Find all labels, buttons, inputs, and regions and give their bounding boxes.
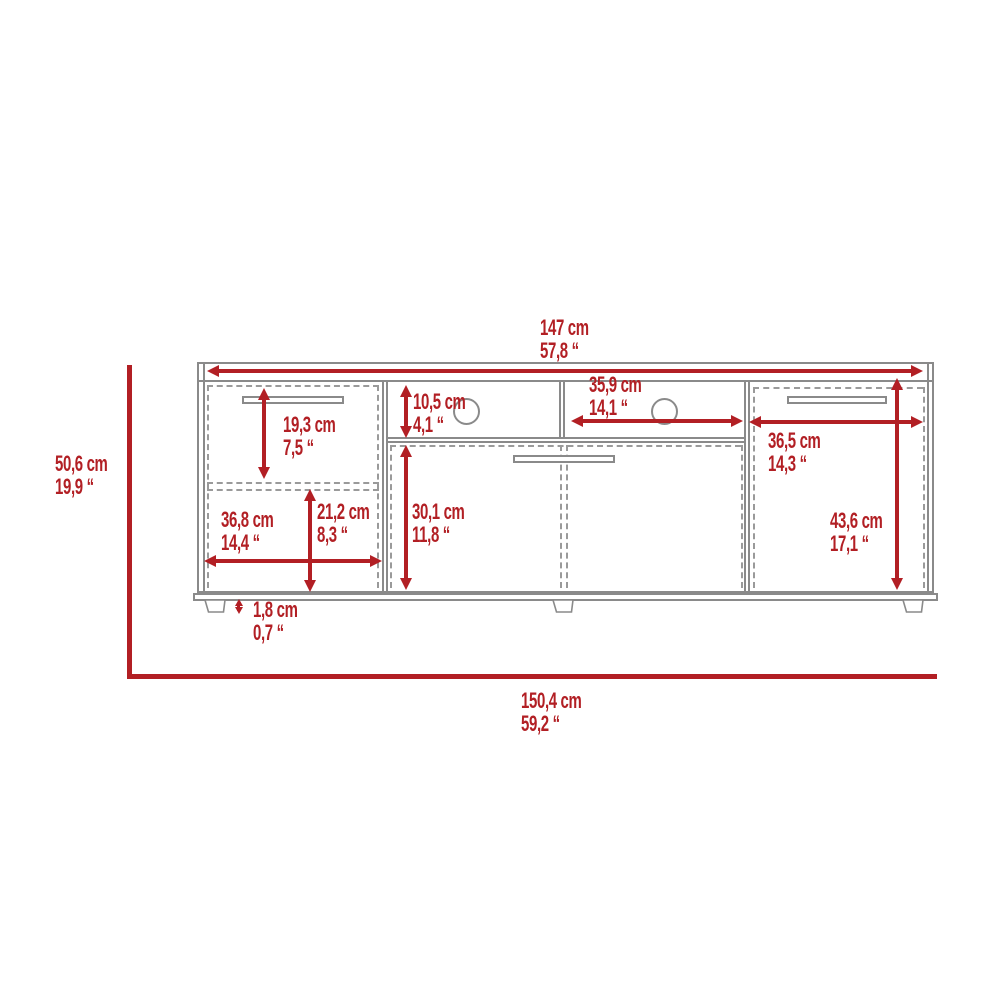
left-door-top-dash	[207, 489, 379, 491]
dim-cm: 21,2 cm	[317, 500, 370, 523]
arrow-up	[891, 378, 903, 390]
dim-in: 7,5 “	[283, 436, 336, 459]
dim-in: 57,8 “	[540, 339, 589, 362]
dim-in: 14,1 “	[589, 396, 642, 419]
dim-in: 14,4 “	[221, 531, 274, 554]
dim-right-door-height-label: 43,6 cm 17,1 “	[830, 509, 883, 555]
dim-cm: 1,8 cm	[253, 598, 298, 621]
arrow-left	[207, 365, 219, 377]
arrow-up	[235, 599, 243, 606]
middle-door-right-edge-dash	[741, 445, 743, 588]
arrow-left	[749, 416, 761, 428]
dim-top-width-label: 147 cm 57,8 “	[540, 316, 589, 362]
dim-line	[308, 494, 312, 586]
arrow-left	[571, 415, 583, 427]
right-door-handle	[787, 396, 887, 404]
dim-middle-door-height-label: 30,1 cm 11,8 “	[412, 500, 465, 546]
dim-in: 14,3 “	[768, 452, 821, 475]
middle-doors-handle	[513, 455, 615, 463]
arrow-right	[911, 365, 923, 377]
top-board-underside	[199, 380, 932, 382]
overall-width-line	[127, 674, 937, 679]
dim-middle-shelf-width-label: 35,9 cm 14,1 “	[589, 373, 642, 419]
dim-cm: 35,9 cm	[589, 373, 642, 396]
dim-in: 8,3 “	[317, 523, 370, 546]
dim-cm: 30,1 cm	[412, 500, 465, 523]
dim-left-drawer-height-label: 19,3 cm 7,5 “	[283, 413, 336, 459]
dim-base-height-label: 1,8 cm 0,7 “	[253, 598, 298, 644]
dim-cm: 150,4 cm	[521, 689, 581, 712]
dim-in: 0,7 “	[253, 621, 298, 644]
dim-line	[210, 559, 376, 563]
arrow-right	[370, 555, 382, 567]
shelf-mid-divider	[559, 380, 565, 439]
foot-right	[902, 600, 924, 613]
dim-line	[755, 420, 917, 424]
dim-cm: 50,6 cm	[55, 452, 108, 475]
dim-cm: 10,5 cm	[413, 390, 466, 413]
overall-height-line	[127, 365, 132, 679]
left-drawer-top-dash	[207, 385, 379, 387]
shelf-board-top	[388, 437, 744, 439]
dim-cm: 43,6 cm	[830, 509, 883, 532]
dim-in: 11,8 “	[412, 523, 465, 546]
dim-line	[262, 394, 266, 474]
dim-top-shelf-height-label: 10,5 cm 4,1 “	[413, 390, 466, 436]
foot-left	[204, 600, 226, 613]
dim-cm: 36,5 cm	[768, 429, 821, 452]
arrow-down	[304, 580, 316, 592]
dim-cm: 19,3 cm	[283, 413, 336, 436]
dim-line	[895, 383, 899, 584]
arrow-up	[304, 489, 316, 501]
left-drawer-bottom-dash	[207, 482, 379, 484]
middle-door-left-edge-dash	[390, 445, 392, 588]
dim-left-door-width-label: 36,8 cm 14,4 “	[221, 508, 274, 554]
divider-right	[744, 380, 750, 593]
arrow-down	[258, 467, 270, 479]
arrow-up	[400, 385, 412, 397]
arrow-up	[400, 445, 412, 457]
dim-in: 17,1 “	[830, 532, 883, 555]
dim-line	[404, 450, 408, 584]
dim-line	[213, 369, 913, 373]
arrow-right	[911, 416, 923, 428]
arrow-up	[258, 388, 270, 400]
dim-cm: 147 cm	[540, 316, 589, 339]
dim-overall-height-label: 50,6 cm 19,9 “	[55, 452, 108, 498]
dim-cm: 36,8 cm	[221, 508, 274, 531]
dim-overall-width-label: 150,4 cm 59,2 “	[521, 689, 581, 735]
shelf-board-bottom	[388, 441, 744, 443]
arrow-down	[400, 578, 412, 590]
middle-door-split-dash-1	[560, 445, 562, 588]
dim-in: 59,2 “	[521, 712, 581, 735]
arrow-down	[891, 578, 903, 590]
divider-left	[382, 380, 388, 593]
middle-door-split-dash-2	[566, 445, 568, 588]
dim-in: 4,1 “	[413, 413, 466, 436]
arrow-left	[204, 555, 216, 567]
arrow-down	[235, 607, 243, 614]
dim-left-door-height-label: 21,2 cm 8,3 “	[317, 500, 370, 546]
right-door-right-dash	[923, 387, 925, 588]
furniture-dimension-diagram: 147 cm 57,8 “ 50,6 cm 19,9 “ 150,4 cm 59…	[0, 0, 1000, 1000]
right-side-panel	[927, 363, 929, 592]
dim-in: 19,9 “	[55, 475, 108, 498]
arrow-right	[731, 415, 743, 427]
foot-middle	[552, 600, 574, 613]
dim-right-door-width-label: 36,5 cm 14,3 “	[768, 429, 821, 475]
arrow-down	[400, 426, 412, 438]
